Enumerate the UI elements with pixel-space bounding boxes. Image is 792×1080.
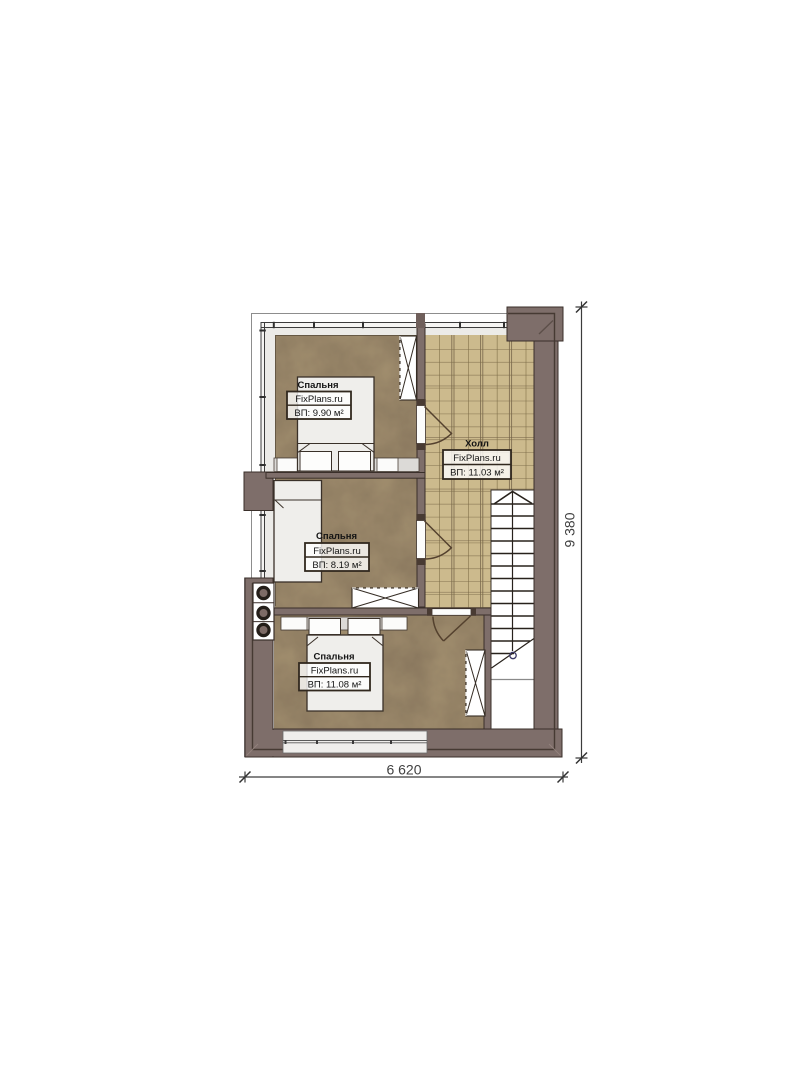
svg-text:ВП: 11.08 м²: ВП: 11.08 м² (308, 679, 362, 690)
svg-text:FixPlans.ru: FixPlans.ru (295, 394, 343, 405)
svg-text:Спальня: Спальня (313, 652, 354, 663)
svg-text:6 620: 6 620 (386, 762, 421, 778)
svg-text:FixPlans.ru: FixPlans.ru (311, 666, 359, 677)
svg-text:ВП: 11.03 м²: ВП: 11.03 м² (450, 467, 504, 478)
svg-text:Спальня: Спальня (316, 531, 357, 542)
svg-text:Холл: Холл (465, 439, 489, 450)
svg-text:ВП: 8.19 м²: ВП: 8.19 м² (312, 560, 361, 571)
svg-text:FixPlans.ru: FixPlans.ru (313, 546, 361, 557)
svg-text:9 380: 9 380 (562, 512, 578, 547)
svg-text:Спальня: Спальня (297, 380, 338, 391)
svg-text:FixPlans.ru: FixPlans.ru (453, 453, 501, 464)
svg-text:ВП: 9.90 м²: ВП: 9.90 м² (294, 408, 343, 419)
